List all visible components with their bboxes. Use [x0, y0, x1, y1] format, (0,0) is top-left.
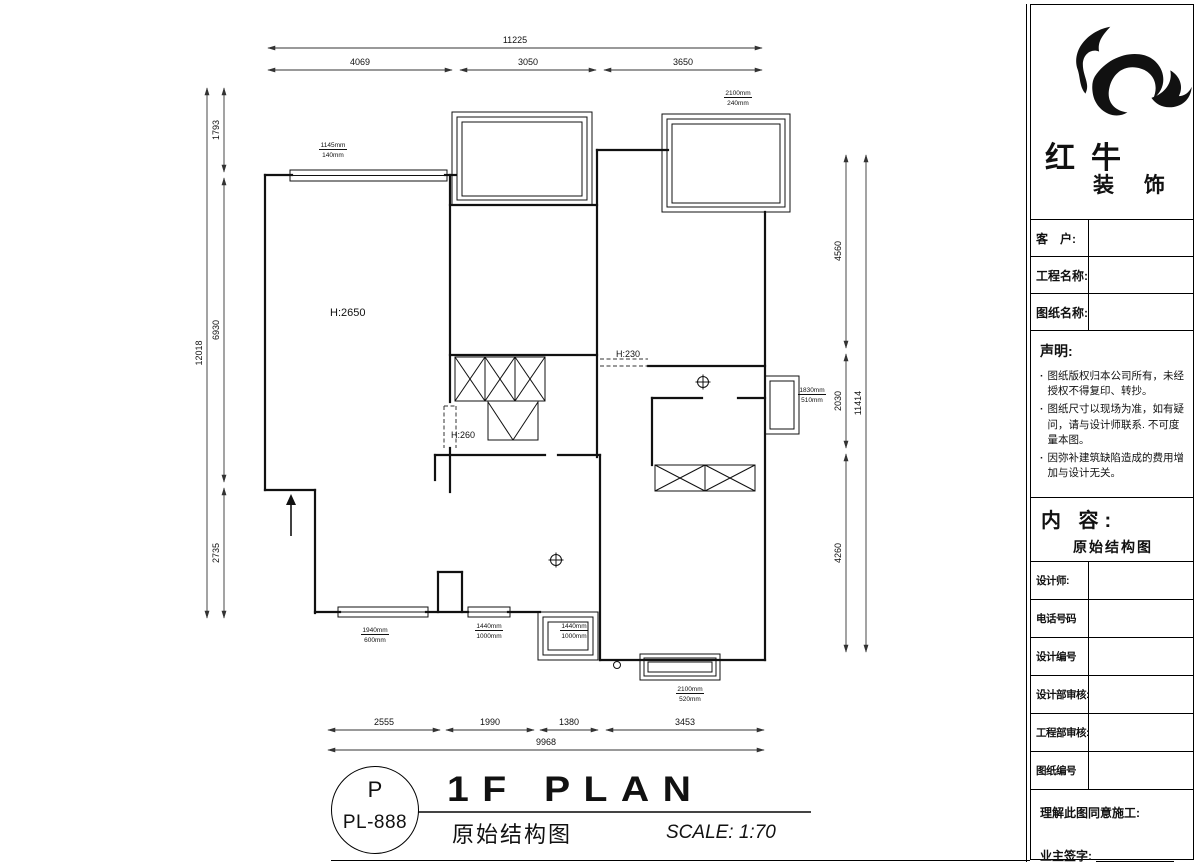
svg-text:1440mm: 1440mm — [476, 623, 501, 630]
owner-signature-label: 业主签字: — [1040, 847, 1185, 864]
plan-title: 1F PLAN — [447, 770, 704, 810]
pipe-symbol — [614, 662, 621, 669]
signature-line[interactable] — [1096, 861, 1174, 862]
field-value[interactable] — [1089, 294, 1193, 330]
svg-text:1440mm: 1440mm — [561, 623, 586, 630]
svg-text:510mm: 510mm — [801, 397, 823, 404]
dim-label: 3453 — [675, 717, 695, 727]
field-label: 客 户: — [1031, 220, 1089, 256]
dim-label: 11414 — [853, 391, 863, 415]
dim-label: 1990 — [480, 717, 500, 727]
shaft-hatch — [455, 357, 755, 491]
field-customer: 客 户: — [1031, 219, 1193, 256]
room-label: H:2650 — [330, 307, 365, 319]
dim-label: 12018 — [194, 340, 204, 365]
drain-symbol — [549, 553, 564, 568]
plan-scale: SCALE: 1:70 — [666, 822, 776, 844]
field-label: 设计编号 — [1031, 638, 1089, 675]
dim-label: 4069 — [350, 57, 370, 67]
field-label: 电话号码 — [1031, 600, 1089, 637]
field-value[interactable] — [1089, 752, 1193, 789]
dim-label: 2030 — [833, 391, 843, 411]
svg-text:1000mm: 1000mm — [561, 633, 586, 640]
field-label: 图纸编号 — [1031, 752, 1089, 789]
window-label: 1145mm 140mm — [319, 142, 347, 159]
field-drawing-number: 图纸编号 — [1031, 751, 1193, 789]
signature-label-text: 业主签字: — [1040, 849, 1092, 863]
field-value[interactable] — [1089, 600, 1193, 637]
dim-label: 1380 — [559, 717, 579, 727]
svg-text:1940mm: 1940mm — [362, 627, 387, 634]
entry-arrow-icon — [286, 494, 296, 536]
windows — [290, 170, 510, 617]
svg-text:2100mm: 2100mm — [725, 90, 750, 97]
sheet-stamp: P PL-888 — [331, 766, 419, 854]
field-designer: 设计师: — [1031, 561, 1193, 599]
title-block: 红牛 装 饰 客 户: 工程名称: 图纸名称: 声明: 图纸版权归本公司所有，未… — [1030, 4, 1194, 860]
field-value[interactable] — [1089, 676, 1193, 713]
field-label: 设计师: — [1031, 562, 1089, 599]
field-label: 设计部审核: — [1031, 676, 1089, 713]
window-label: 2100mm 240mm — [724, 90, 752, 107]
window-label: 1440mm 1000mm — [560, 623, 588, 640]
field-value[interactable] — [1089, 257, 1193, 293]
svg-text:2100mm: 2100mm — [677, 686, 702, 693]
consent-text: 理解此图同意施工: — [1040, 804, 1185, 821]
svg-text:1145mm: 1145mm — [321, 142, 346, 149]
sheet-bottom-border — [331, 860, 1030, 861]
svg-text:1000mm: 1000mm — [476, 633, 501, 640]
dim-right: 4560 2030 4260 11414 — [833, 155, 866, 652]
field-drawing-name: 图纸名称: — [1031, 293, 1193, 330]
room-label: H:230 — [616, 349, 640, 359]
field-design-dept-review: 设计部审核: — [1031, 675, 1193, 713]
svg-text:520mm: 520mm — [679, 696, 701, 703]
field-project-name: 工程名称: — [1031, 256, 1193, 293]
brand-subname: 装 饰 — [1093, 169, 1177, 199]
bay-windows — [452, 112, 799, 680]
svg-text:1830mm: 1830mm — [799, 387, 824, 394]
dim-label: 4260 — [833, 543, 843, 563]
statement-item: 因弥补建筑缺陷造成的费用增加与设计无关。 — [1040, 451, 1186, 481]
drawing-sheet: 11225 4069 3050 3650 12018 1793 6930 273… — [0, 0, 1200, 868]
statement-item: 图纸尺寸以现场为准，如有疑问，请与设计师联系. 不可度量本图。 — [1040, 402, 1186, 448]
floor-plan: 11225 4069 3050 3650 12018 1793 6930 273… — [0, 0, 1030, 868]
svg-text:240mm: 240mm — [727, 100, 749, 107]
signature-section: 理解此图同意施工: 业主签字: — [1031, 789, 1193, 864]
field-phone: 电话号码 — [1031, 599, 1193, 637]
window-label: 1830mm 510mm — [798, 387, 826, 404]
dim-top: 11225 4069 3050 3650 — [268, 35, 762, 70]
dim-bottom: 2555 1990 1380 3453 9968 — [328, 717, 764, 750]
field-value[interactable] — [1089, 638, 1193, 675]
window-label: 1940mm 600mm — [361, 627, 389, 644]
plan-subtitle: 原始结构图 — [452, 817, 572, 849]
field-engineering-dept-review: 工程部审核: — [1031, 713, 1193, 751]
dim-label: 11225 — [503, 35, 527, 45]
dim-label: 3650 — [673, 57, 693, 67]
bull-logo-icon — [1043, 13, 1193, 133]
dim-label: 4560 — [833, 241, 843, 261]
content-section: 内 容: 原始结构图 — [1031, 497, 1193, 561]
field-value[interactable] — [1089, 714, 1193, 751]
stamp-code: PL-888 — [332, 812, 418, 834]
field-label: 工程名称: — [1031, 257, 1089, 293]
dim-label: 6930 — [211, 320, 221, 340]
field-design-number: 设计编号 — [1031, 637, 1193, 675]
window-label: 1440mm 1000mm — [475, 623, 503, 640]
content-label: 内 容: — [1041, 504, 1185, 533]
dim-label: 2735 — [211, 543, 221, 563]
stamp-letter: P — [332, 777, 418, 803]
statement-item: 图纸版权归本公司所有，未经授权不得复印、转抄。 — [1040, 369, 1186, 399]
svg-text:140mm: 140mm — [322, 152, 344, 159]
drain-symbol — [696, 375, 711, 390]
statement-section: 声明: 图纸版权归本公司所有，未经授权不得复印、转抄。 图纸尺寸以现场为准，如有… — [1031, 330, 1193, 497]
dim-label: 3050 — [518, 57, 538, 67]
dim-label: 1793 — [211, 120, 221, 140]
content-value: 原始结构图 — [1041, 537, 1185, 557]
walls — [265, 150, 765, 660]
svg-text:600mm: 600mm — [364, 637, 386, 644]
room-label: H:260 — [451, 430, 475, 440]
dim-label: 2555 — [374, 717, 394, 727]
dim-left: 12018 1793 6930 2735 — [194, 88, 224, 618]
window-label: 2100mm 520mm — [676, 686, 704, 703]
field-label: 工程部审核: — [1031, 714, 1089, 751]
page-border — [1026, 4, 1027, 862]
statement-title: 声明: — [1040, 341, 1186, 361]
company-logo: 红牛 装 饰 — [1031, 5, 1193, 219]
field-label: 图纸名称: — [1031, 294, 1089, 330]
field-value[interactable] — [1089, 220, 1193, 256]
field-value[interactable] — [1089, 562, 1193, 599]
dim-label: 9968 — [536, 737, 556, 747]
double-door-symbol — [488, 402, 538, 440]
